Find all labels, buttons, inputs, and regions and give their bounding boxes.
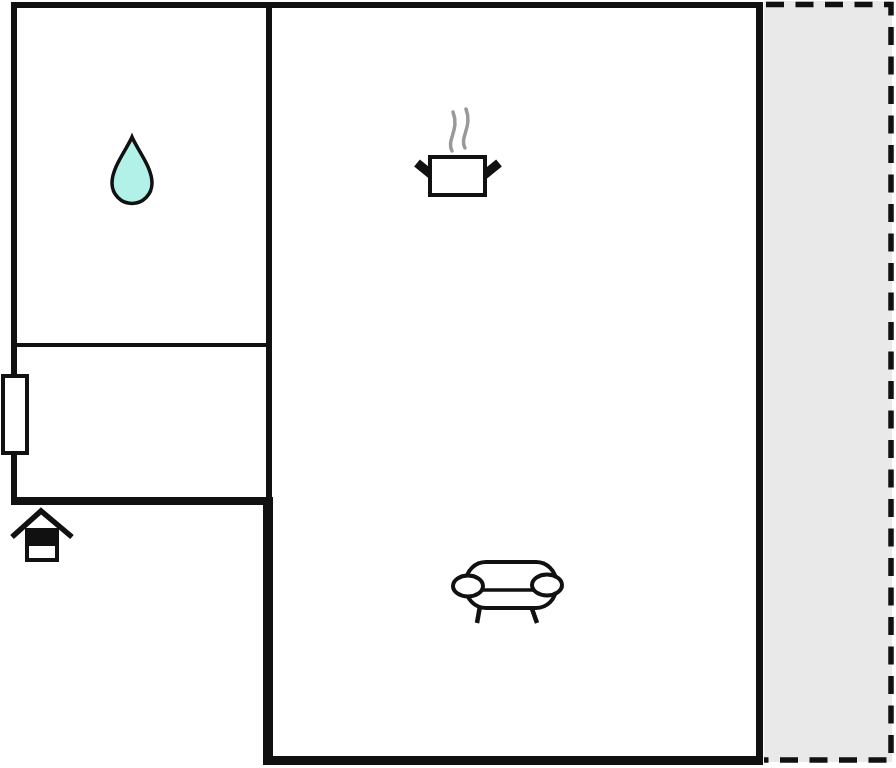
window-symbol [3, 376, 27, 453]
wall-right [756, 2, 763, 756]
steam-icon [463, 109, 468, 148]
steam-icon [450, 112, 455, 151]
sofa-icon [453, 562, 562, 623]
sofa-armrest-left [453, 576, 483, 597]
wall-center-vertical [266, 2, 272, 502]
floorplan [0, 0, 896, 768]
walls [11, 2, 763, 765]
pot-body [430, 157, 485, 195]
house-top-fill [26, 529, 59, 547]
wall-top [11, 2, 763, 8]
wall-bottom-main [263, 756, 763, 765]
sofa-armrest-right [532, 575, 562, 596]
terrace-area [764, 1, 892, 762]
wall-main-left-lower [263, 497, 273, 765]
entrance-house-icon [12, 511, 72, 560]
cooking-pot-icon [417, 109, 499, 195]
wall-divider-left-rooms [14, 343, 269, 347]
wall-room2-bottom [11, 497, 273, 505]
water-drop-icon [112, 137, 152, 204]
floorplan-svg [0, 0, 896, 768]
